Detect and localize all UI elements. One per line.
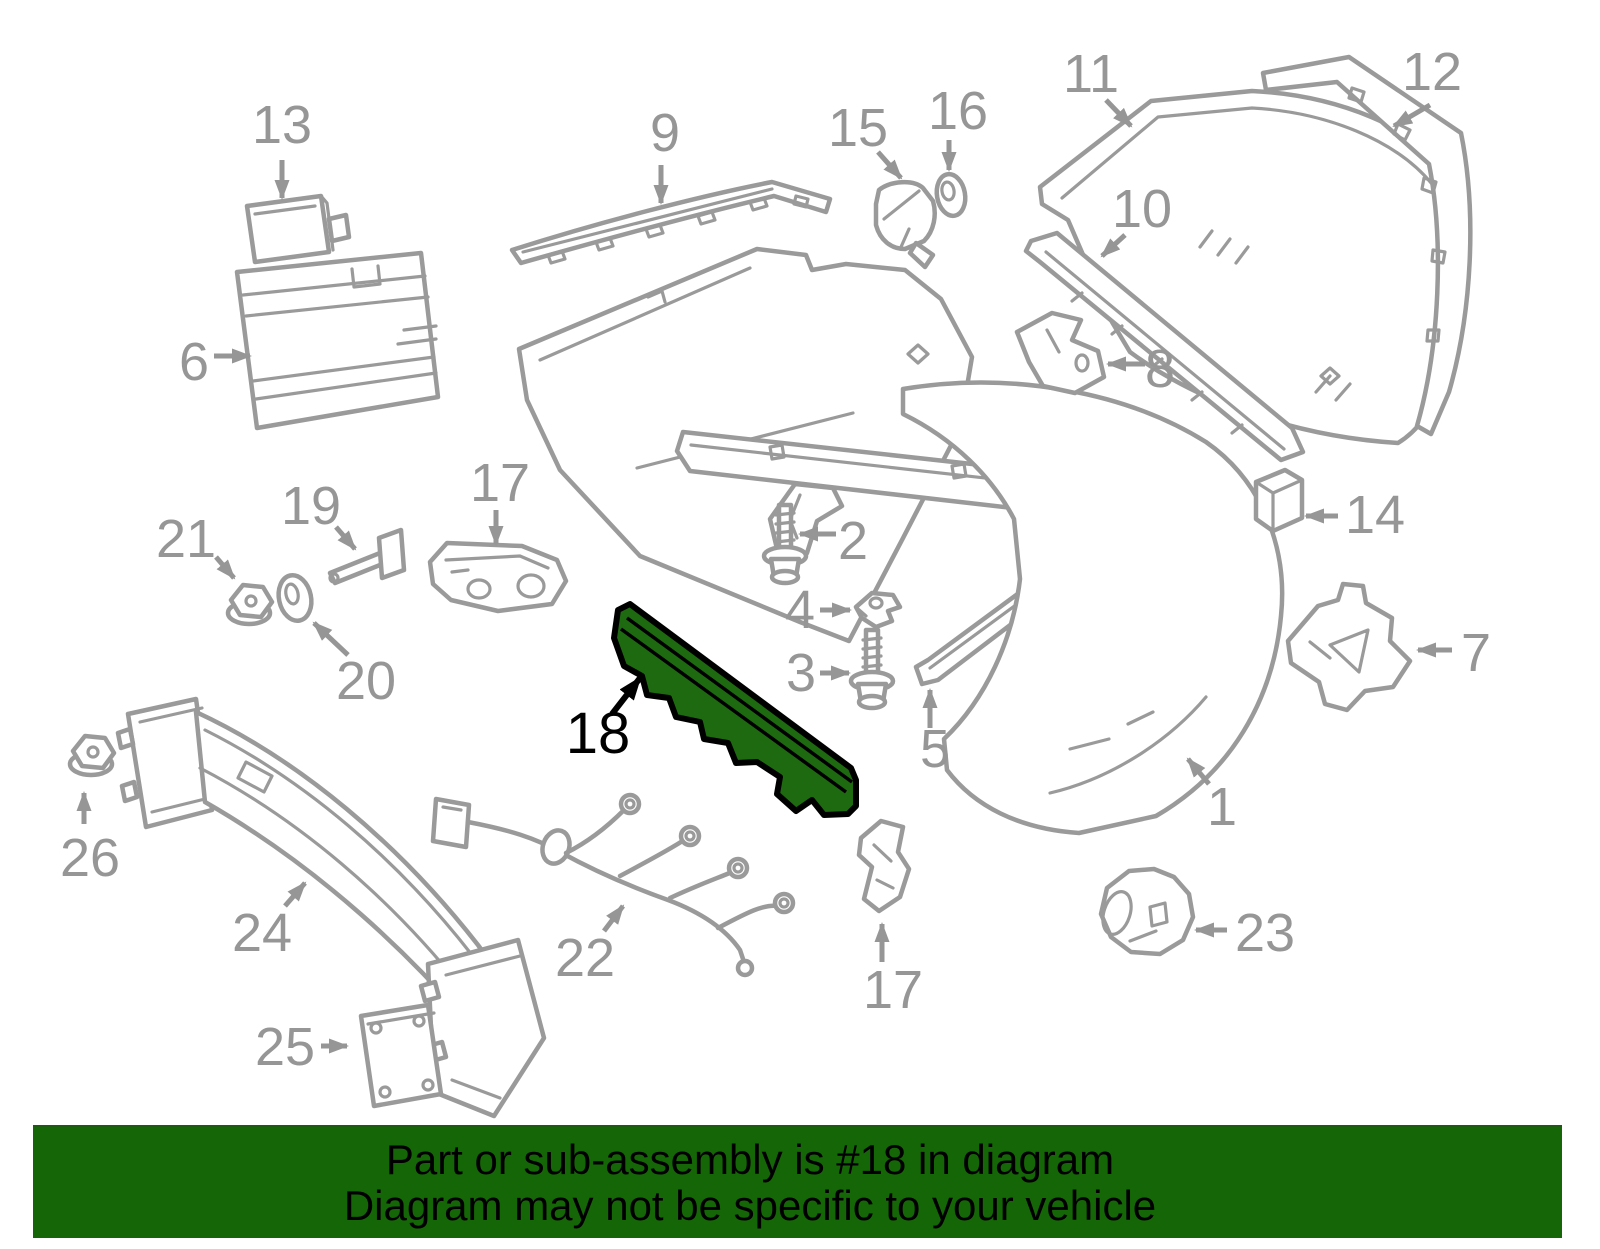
- part-8-bracket: [1017, 313, 1104, 393]
- part-21-flange-nut: [228, 585, 272, 624]
- callout-3[interactable]: 3: [786, 643, 849, 703]
- callout-24-label: 24: [232, 903, 292, 963]
- part-7-corner-bracket: [1288, 584, 1410, 710]
- part-26-flange-nut: [70, 736, 114, 775]
- callout-13-label: 13: [252, 95, 312, 155]
- callout-11-label: 11: [1063, 44, 1119, 104]
- part-17-upper-bracket: [430, 543, 566, 611]
- callout-17-upper[interactable]: 17: [470, 453, 530, 544]
- part-11-trim-panel: [1040, 91, 1466, 443]
- highlight-banner: Part or sub-assembly is #18 in diagram D…: [33, 1125, 1562, 1238]
- callout-1-label: 1: [1207, 777, 1237, 837]
- part-1-bumper-cover: [903, 383, 1282, 833]
- part-17-lower-bracket: [859, 821, 909, 911]
- callout-23[interactable]: 23: [1196, 903, 1295, 963]
- part-13-sensor-module: [247, 196, 349, 262]
- callout-14[interactable]: 14: [1306, 485, 1405, 545]
- callout-19[interactable]: 19: [281, 476, 355, 549]
- part-14-spacer-block: [1256, 470, 1302, 531]
- part-18-highlighted-absorber[interactable]: [614, 604, 856, 815]
- callout-21-arrow: [216, 557, 234, 578]
- callout-26-label: 26: [60, 828, 120, 888]
- callout-21-label: 21: [156, 509, 216, 569]
- callout-9[interactable]: 9: [650, 103, 680, 203]
- callout-18-highlight[interactable]: 18: [566, 678, 640, 766]
- callout-14-label: 14: [1345, 485, 1405, 545]
- callout-4-label: 4: [785, 580, 815, 640]
- callout-18-label: 18: [566, 701, 631, 766]
- callout-6[interactable]: 6: [179, 332, 250, 392]
- callout-7-label: 7: [1461, 623, 1491, 683]
- callout-5[interactable]: 5: [920, 690, 950, 779]
- part-3-screw: [851, 630, 893, 708]
- part-24-impact-bar: [118, 699, 544, 1116]
- part-23-parking-sensor: [1098, 869, 1193, 954]
- callout-19-label: 19: [281, 476, 341, 536]
- callout-2-label: 2: [838, 511, 868, 571]
- callout-9-label: 9: [650, 103, 680, 163]
- part-15-parking-sensor: [876, 182, 935, 267]
- parts-diagram-page: 13 6 9 15 16 11 12 10 8 14 2 4: [0, 0, 1600, 1249]
- callout-21[interactable]: 21: [156, 509, 234, 578]
- callout-17-lower[interactable]: 17: [863, 924, 923, 1020]
- callout-8-label: 8: [1145, 339, 1175, 399]
- callout-13[interactable]: 13: [252, 95, 312, 198]
- callout-24[interactable]: 24: [232, 883, 305, 963]
- part-25-mount-plate: [361, 1005, 441, 1106]
- callout-7[interactable]: 7: [1418, 623, 1491, 683]
- callout-16[interactable]: 16: [928, 81, 988, 170]
- callout-17-upper-label: 17: [470, 453, 530, 513]
- callout-16-label: 16: [928, 81, 988, 141]
- callout-22[interactable]: 22: [555, 906, 623, 988]
- banner-line-1: Part or sub-assembly is #18 in diagram: [386, 1137, 1114, 1183]
- callout-11[interactable]: 11: [1063, 44, 1131, 126]
- callout-23-label: 23: [1235, 903, 1295, 963]
- callout-15[interactable]: 15: [828, 98, 901, 178]
- callout-22-label: 22: [555, 928, 615, 988]
- part-6-license-panel: [237, 253, 438, 428]
- banner-line-2: Diagram may not be specific to your vehi…: [344, 1183, 1156, 1229]
- part-20-washer: [275, 572, 316, 624]
- callout-26[interactable]: 26: [60, 793, 120, 888]
- callout-20[interactable]: 20: [314, 623, 396, 711]
- callout-6-label: 6: [179, 332, 209, 392]
- callout-12-label: 12: [1402, 42, 1462, 102]
- callout-10-label: 10: [1112, 179, 1172, 239]
- callout-20-label: 20: [336, 651, 396, 711]
- callout-25-label: 25: [255, 1017, 315, 1077]
- callout-17-lower-label: 17: [863, 960, 923, 1020]
- part-16-grommet: [934, 172, 969, 218]
- parts-diagram-canvas[interactable]: 13 6 9 15 16 11 12 10 8 14 2 4: [0, 0, 1600, 1249]
- callout-15-label: 15: [828, 98, 888, 158]
- part-19-pin: [330, 530, 404, 583]
- callout-25[interactable]: 25: [255, 1017, 347, 1077]
- callout-5-label: 5: [920, 719, 950, 779]
- callout-3-label: 3: [786, 643, 816, 703]
